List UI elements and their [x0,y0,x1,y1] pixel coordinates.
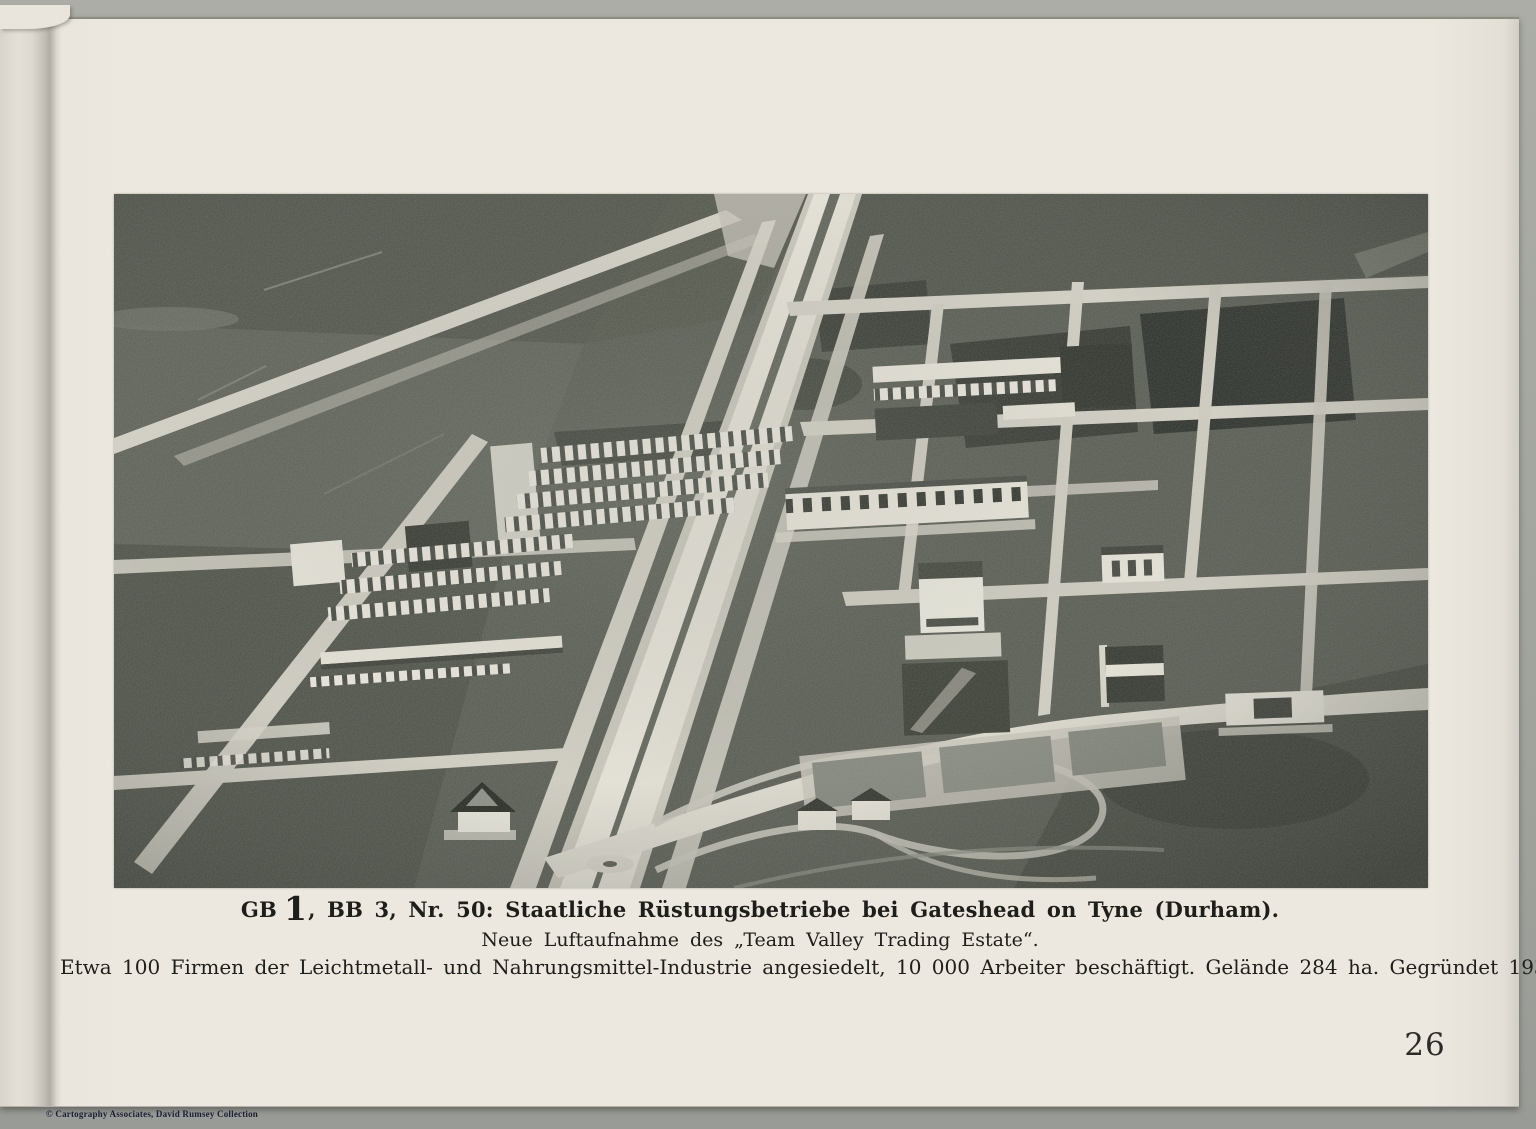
caption-country-code: GB [241,897,277,922]
caption-big-numeral: 1 [284,889,307,928]
caption-line-1: GB1, BB 3, Nr. 50: Staatliche Rüstungsbe… [60,895,1460,923]
page-number: 26 [1380,1027,1470,1063]
scanned-page-stage: GB1, BB 3, Nr. 50: Staatliche Rüstungsbe… [0,0,1536,1129]
photo-caption: GB1, BB 3, Nr. 50: Staatliche Rüstungsbe… [60,895,1460,979]
photo-film-grain [114,194,1428,888]
aerial-photo-art [114,194,1428,888]
caption-line-3: Etwa 100 Firmen der Leichtmetall- und Na… [60,955,1460,979]
caption-line-2: Neue Luftaufnahme des „Team Valley Tradi… [60,928,1460,952]
page-spine-gutter [0,19,62,1106]
copyright-text: © Cartography Associates, David Rumsey C… [46,1109,258,1119]
aerial-photo [114,194,1428,888]
book-page: GB1, BB 3, Nr. 50: Staatliche Rüstungsbe… [0,17,1519,1107]
caption-line-1-rest: , BB 3, Nr. 50: Staatliche Rüstungsbetri… [308,897,1279,922]
